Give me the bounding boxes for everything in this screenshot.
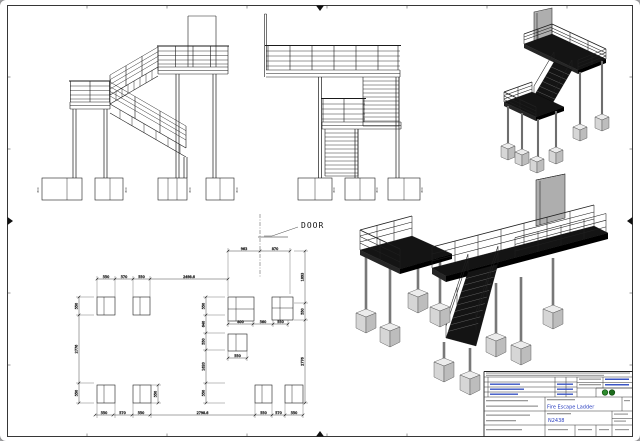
- footing-dim-label: 600: [420, 187, 424, 192]
- notes-text: [486, 375, 604, 376]
- dim-label: 550: [138, 275, 144, 279]
- dim-label: 800: [237, 320, 243, 324]
- dim-label: 550: [291, 411, 297, 415]
- dim-label: 570: [119, 411, 125, 415]
- drawing-sheet: 600 600 600 600 600 600 600: [0, 0, 640, 441]
- door-label: DOOR: [301, 221, 324, 230]
- dim-label: 550: [301, 308, 305, 314]
- dim-label: 550: [234, 354, 240, 358]
- drawn-by-text: [486, 400, 528, 401]
- dim-label: 550: [202, 303, 206, 309]
- dim-label: 550: [103, 275, 109, 279]
- dim-label: 963: [241, 247, 247, 251]
- iso-view-small: [501, 8, 609, 173]
- title-block: Fire Escape Ladder N2438: [484, 372, 633, 437]
- drawing-number-value: N2438: [548, 418, 564, 424]
- drawing-title: Fire Escape Ladder: [547, 405, 595, 411]
- dim-label: 570: [275, 411, 281, 415]
- dim-label: 550: [75, 303, 79, 309]
- footing-dim-label: 600: [36, 187, 40, 192]
- dim-label: 550: [138, 411, 144, 415]
- footing-dim-label: 600: [332, 187, 336, 192]
- company-block: [577, 377, 633, 397]
- bottom-center-mark: [316, 431, 324, 437]
- dim-label: 550: [202, 390, 206, 396]
- dim-label: 870: [272, 247, 278, 251]
- dim-label: 2776: [75, 345, 79, 354]
- dim-label: 2498.6: [183, 275, 195, 279]
- dim-label: 2798.6: [197, 411, 209, 415]
- dim-label: 570: [121, 275, 127, 279]
- dim-label: 550: [202, 338, 206, 344]
- revision-table: [484, 377, 577, 397]
- number-field-label: [547, 413, 571, 414]
- dim-label: 550: [260, 411, 266, 415]
- footing-dim-label: 600: [124, 187, 128, 192]
- dim-label: 1620: [202, 362, 206, 371]
- dim-label: 1893: [301, 273, 305, 282]
- door-panel: [536, 174, 565, 226]
- dim-label: 550: [277, 320, 283, 324]
- side-elevation-view: 600 600 600: [265, 14, 425, 200]
- dim-label: 560: [260, 320, 266, 324]
- drawn-by-text: [486, 406, 538, 407]
- footing-pad: [97, 297, 303, 403]
- notes-text: [486, 373, 630, 374]
- iso-view-large: [356, 174, 608, 395]
- dim-label: 550: [75, 390, 79, 396]
- footing-dim-label: 600: [188, 187, 192, 192]
- title-field-label: [547, 399, 575, 400]
- dim-label: 2776: [301, 357, 305, 366]
- front-elevation-view: 600 600 600 600: [36, 16, 239, 200]
- dim-label: 550: [101, 411, 107, 415]
- left-center-mark: [8, 217, 14, 225]
- footing-dim-label: 600: [235, 187, 239, 192]
- dim-label: 640: [202, 321, 206, 327]
- company-logo-icon: [602, 390, 615, 396]
- plan-view: DOOR 963 870 550 570 550 2498.6 550 2776…: [75, 214, 325, 418]
- top-center-mark: [316, 6, 324, 12]
- footing-dim-label: 600: [375, 187, 379, 192]
- dim-label: 550: [154, 391, 158, 397]
- right-center-mark: [627, 217, 633, 225]
